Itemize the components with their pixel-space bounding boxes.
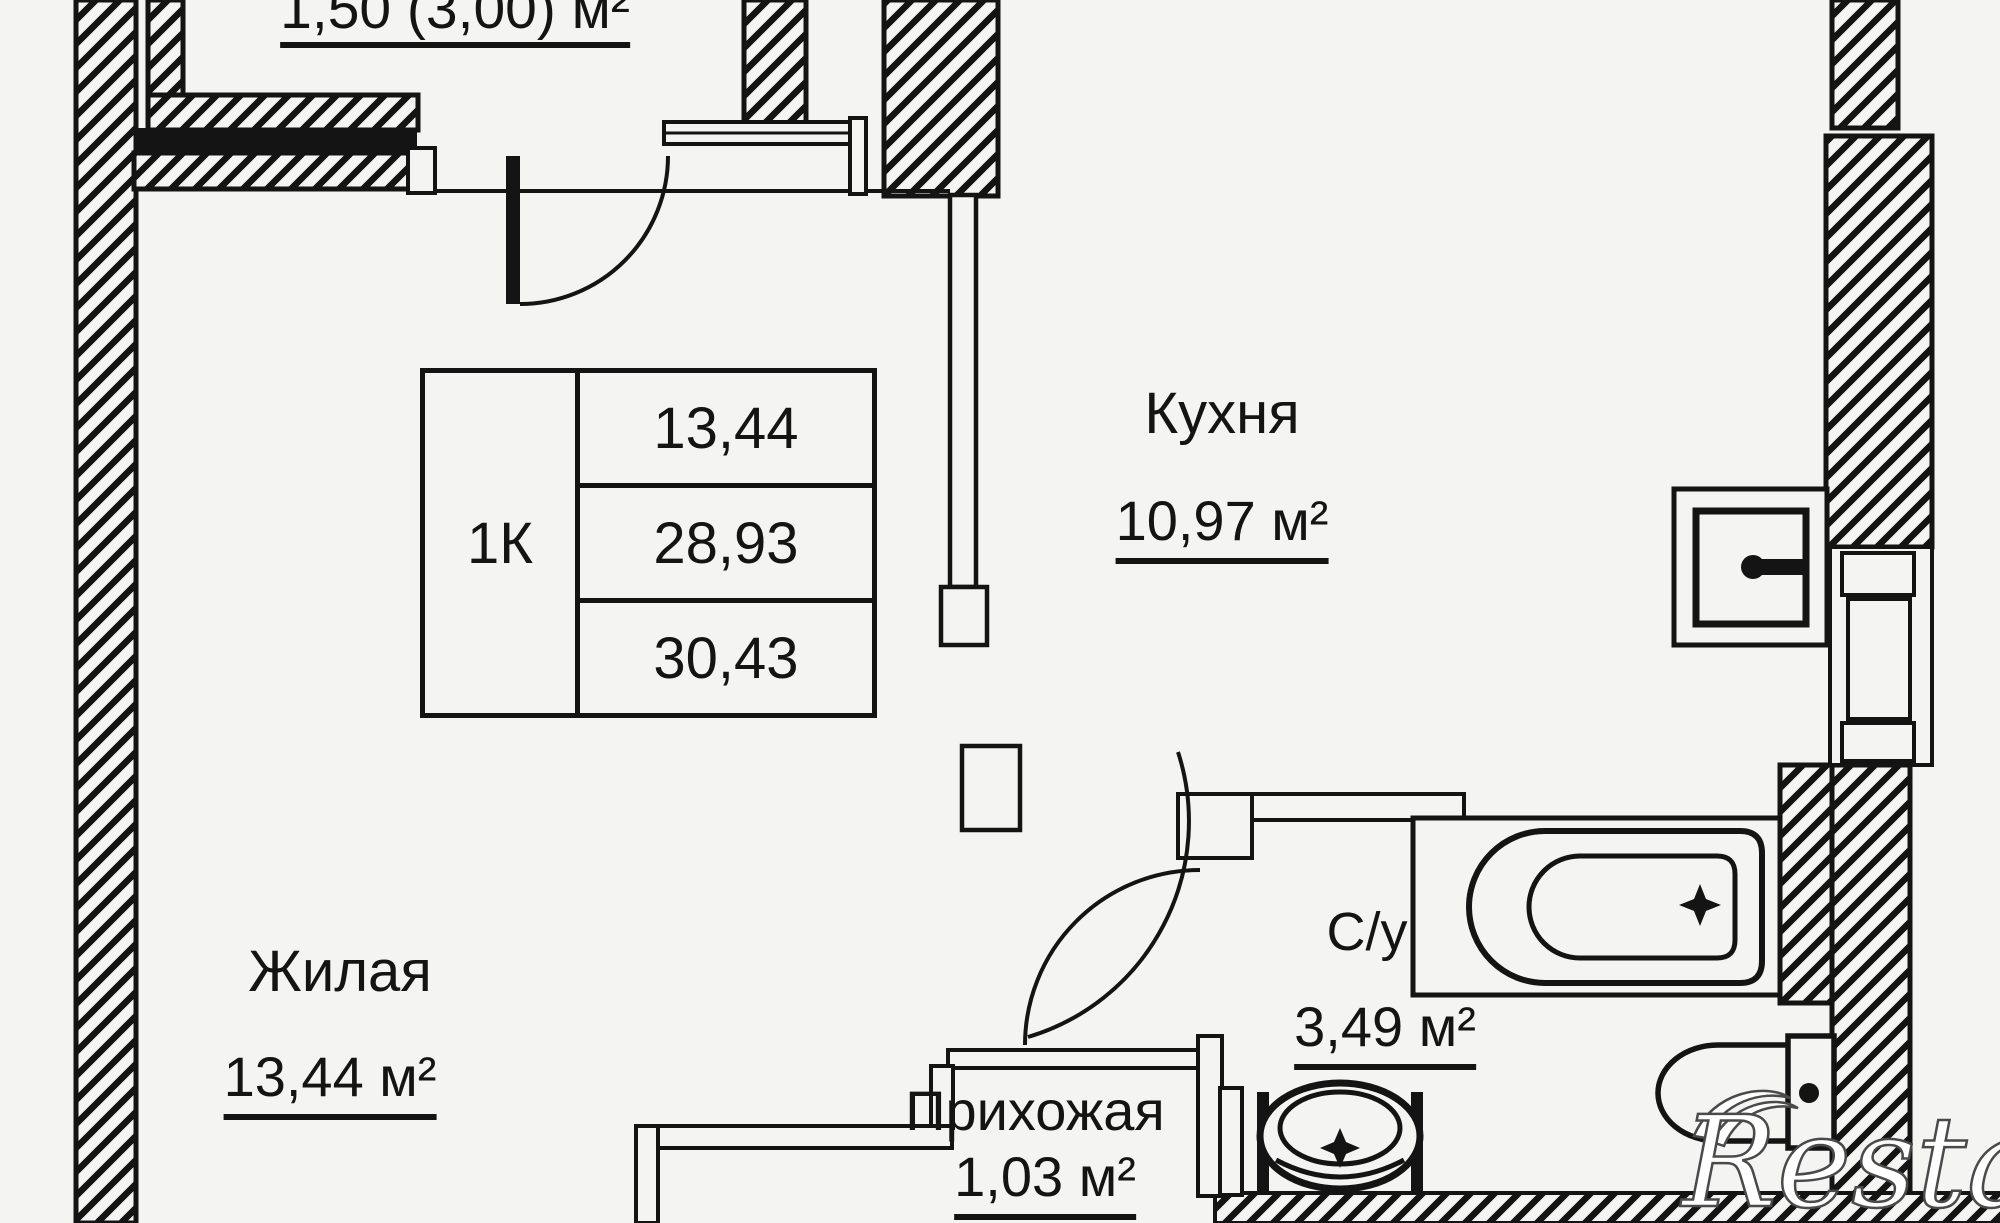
watermark: Restate [1680,1089,2000,1223]
bathtub [1413,818,1780,995]
washbasin [1257,1083,1423,1192]
balcony-area-label: 1,50 (3,00) м² [280,0,630,48]
balcony-door [408,148,668,304]
total-area-value: 28,93 [580,488,872,603]
balcony-window-sill [134,128,417,152]
wall-right-top [1832,0,1898,128]
apartment-info-table: 1К 13,44 28,93 30,43 [420,368,877,718]
door-leaf [506,156,520,304]
wall-hallway-top [948,1050,1200,1068]
window-jamb [850,118,866,194]
kitchen-door-leaf [962,746,1020,830]
window [664,118,866,194]
wall-right-mid [1826,136,1932,547]
door-swing-arc [520,156,668,304]
floor-plan-drawing: Restate [0,0,2000,1223]
bathroom-door-swing-arc [1025,870,1200,1045]
bathroom-door [1025,870,1200,1045]
wall-top-living [134,153,414,189]
door-jamb [408,148,435,193]
balcony-parapet-front [148,95,418,130]
watermark-text: Restate [1680,1089,2000,1223]
kitchen-door [962,746,1189,1037]
wall-jamb-block [941,587,987,645]
wall-hallway-left [636,1126,658,1223]
kitchen-faucet-arm [1753,559,1806,575]
bathroom-area-label: 3,49 м² [1294,998,1476,1070]
kitchen-area-label: 10,97 м² [1116,492,1329,564]
floor-plan: Restate 1,50 (3,00) м² Кухня 10,97 м² Жи… [0,0,2000,1223]
apartment-areas: 13,44 28,93 30,43 [580,373,872,713]
wall-bath-left [1220,1088,1242,1195]
hallway-area-label: 1,03 м² [954,1148,1136,1220]
radiator-niche [1830,547,1932,765]
living-area-label: 13,44 м² [224,1048,437,1120]
living-name-label: Жилая [248,942,431,1001]
wall-kitchen-living [950,195,976,587]
kitchen-name-label: Кухня [1144,384,1299,443]
apartment-type: 1К [425,373,580,713]
living-area-value: 13,44 [580,373,872,488]
radiator [1830,547,1932,765]
wall-left [76,0,136,1223]
bathroom-name-label: С/у [1327,905,1408,960]
kitchen-sink [1674,489,1827,645]
balcony-wall-right [744,0,806,140]
wall-top-column [884,0,998,196]
total-area-with-balcony-value: 30,43 [580,603,872,713]
hallway-name-label: Прихожая [905,1082,1165,1139]
